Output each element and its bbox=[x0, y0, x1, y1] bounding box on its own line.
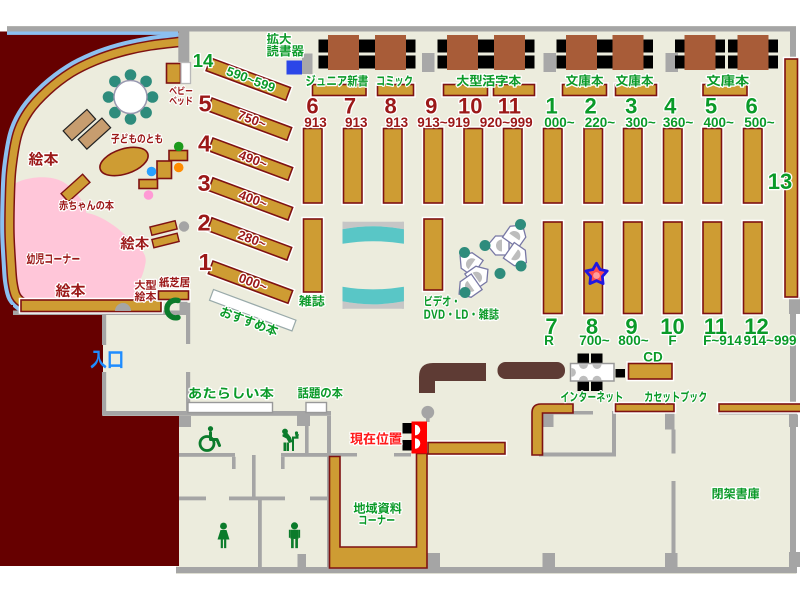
svg-text:300~: 300~ bbox=[625, 115, 656, 130]
svg-text:3: 3 bbox=[197, 170, 210, 196]
svg-text:4: 4 bbox=[198, 131, 211, 157]
svg-text:920~999: 920~999 bbox=[480, 115, 533, 130]
svg-text:R: R bbox=[544, 333, 554, 348]
svg-text:400~: 400~ bbox=[703, 115, 734, 130]
svg-text:913: 913 bbox=[304, 115, 327, 130]
svg-text:1: 1 bbox=[198, 249, 211, 275]
svg-text:500~: 500~ bbox=[744, 115, 775, 130]
svg-text:360~: 360~ bbox=[663, 115, 694, 130]
svg-text:800~: 800~ bbox=[618, 333, 649, 348]
svg-text:2: 2 bbox=[197, 210, 210, 236]
svg-text:913: 913 bbox=[386, 115, 409, 130]
svg-text:5: 5 bbox=[198, 91, 211, 117]
svg-text:000~: 000~ bbox=[544, 115, 575, 130]
svg-text:14: 14 bbox=[193, 50, 214, 71]
svg-text:700~: 700~ bbox=[579, 333, 610, 348]
svg-text:F~914: F~914 bbox=[703, 333, 742, 348]
svg-text:CD: CD bbox=[643, 350, 663, 365]
svg-text:913~919: 913~919 bbox=[417, 115, 470, 130]
svg-text:F: F bbox=[668, 333, 676, 348]
svg-text:914~999: 914~999 bbox=[744, 333, 797, 348]
svg-text:913: 913 bbox=[345, 115, 368, 130]
svg-text:220~: 220~ bbox=[585, 115, 616, 130]
svg-text:13: 13 bbox=[768, 169, 792, 194]
